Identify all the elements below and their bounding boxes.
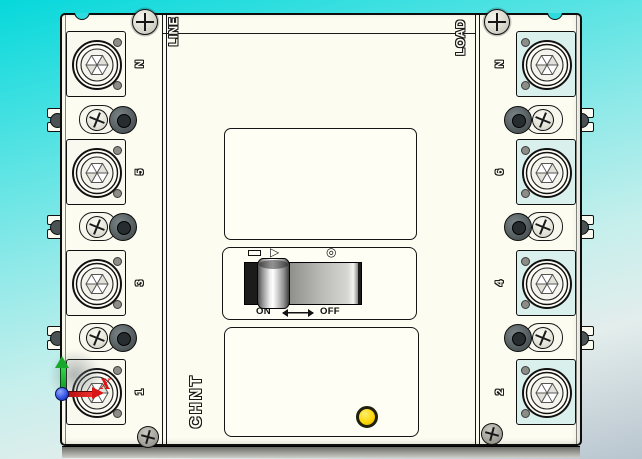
terminal-label: N	[133, 51, 147, 77]
pad-dot	[113, 300, 122, 309]
terminal-block-load-2	[516, 359, 576, 425]
terminal-block-load-n	[516, 31, 576, 97]
body-edge-line	[576, 15, 577, 444]
terminal-label: 1	[133, 379, 147, 405]
switch-trip-symbol: ◎	[326, 246, 336, 258]
line-side-divider	[162, 15, 167, 444]
switch-reset-symbol: ▷	[270, 246, 279, 258]
switch-rocker-face	[290, 263, 358, 304]
test-button[interactable]	[356, 406, 378, 428]
pad-dot	[521, 38, 530, 47]
pad-dot	[113, 81, 122, 90]
cad-viewport[interactable]: ▷ ◎ ON OFF LINE LOAD CHNT N 5 3 1 N 6 4 …	[0, 0, 642, 459]
pad-dot	[521, 189, 530, 198]
accessory-window	[224, 327, 419, 437]
terminal-label: N	[493, 51, 507, 77]
pad-dot	[113, 38, 122, 47]
terminal-block-load-6	[516, 139, 576, 205]
wire-bushing	[109, 213, 137, 241]
terminal-block-line-n	[66, 31, 126, 97]
terminal-label: 6	[493, 159, 507, 185]
wire-bushing	[109, 324, 137, 352]
y-axis-arrowhead	[55, 356, 69, 368]
switch-on-symbol	[248, 250, 261, 256]
terminal-block-load-4	[516, 250, 576, 316]
load-side-divider	[475, 15, 480, 444]
switch-off-label: OFF	[320, 306, 340, 317]
case-notch	[547, 13, 563, 20]
terminal-label: 3	[133, 270, 147, 296]
toggle-handle[interactable]	[257, 258, 290, 309]
wire-bushing	[109, 106, 137, 134]
brand-logo: CHNT	[187, 358, 207, 444]
pad-dot	[113, 189, 122, 198]
terminal-label: 2	[493, 379, 507, 405]
terminal-label: 4	[493, 270, 507, 296]
switch-direction-arrow	[283, 309, 313, 317]
load-side-label: LOAD	[455, 14, 468, 62]
terminal-label: 5	[133, 159, 147, 185]
pad-dot	[521, 409, 530, 418]
cover-contour-line	[163, 33, 476, 34]
terminal-block-line-5	[66, 139, 126, 205]
wire-bushing	[504, 324, 532, 352]
terminal-block-line-3	[66, 250, 126, 316]
cover-screw	[484, 9, 510, 35]
wire-bushing	[504, 213, 532, 241]
device-bottom-chamfer	[62, 446, 580, 458]
origin-point	[55, 387, 69, 401]
wire-bushing	[504, 106, 532, 134]
pad-dot	[521, 300, 530, 309]
x-axis-label: X	[100, 377, 111, 393]
pad-dot	[521, 146, 530, 155]
pad-dot	[113, 257, 122, 266]
pad-dot	[521, 257, 530, 266]
pad-dot	[113, 146, 122, 155]
pad-dot	[521, 81, 530, 90]
pad-dot	[521, 366, 530, 375]
case-notch	[74, 13, 90, 20]
line-side-label: LINE	[168, 10, 181, 54]
rating-label-window	[224, 128, 417, 240]
cover-screw	[132, 9, 158, 35]
pad-dot	[113, 409, 122, 418]
x-axis-arrow	[68, 391, 93, 397]
pad-dot	[113, 366, 122, 375]
